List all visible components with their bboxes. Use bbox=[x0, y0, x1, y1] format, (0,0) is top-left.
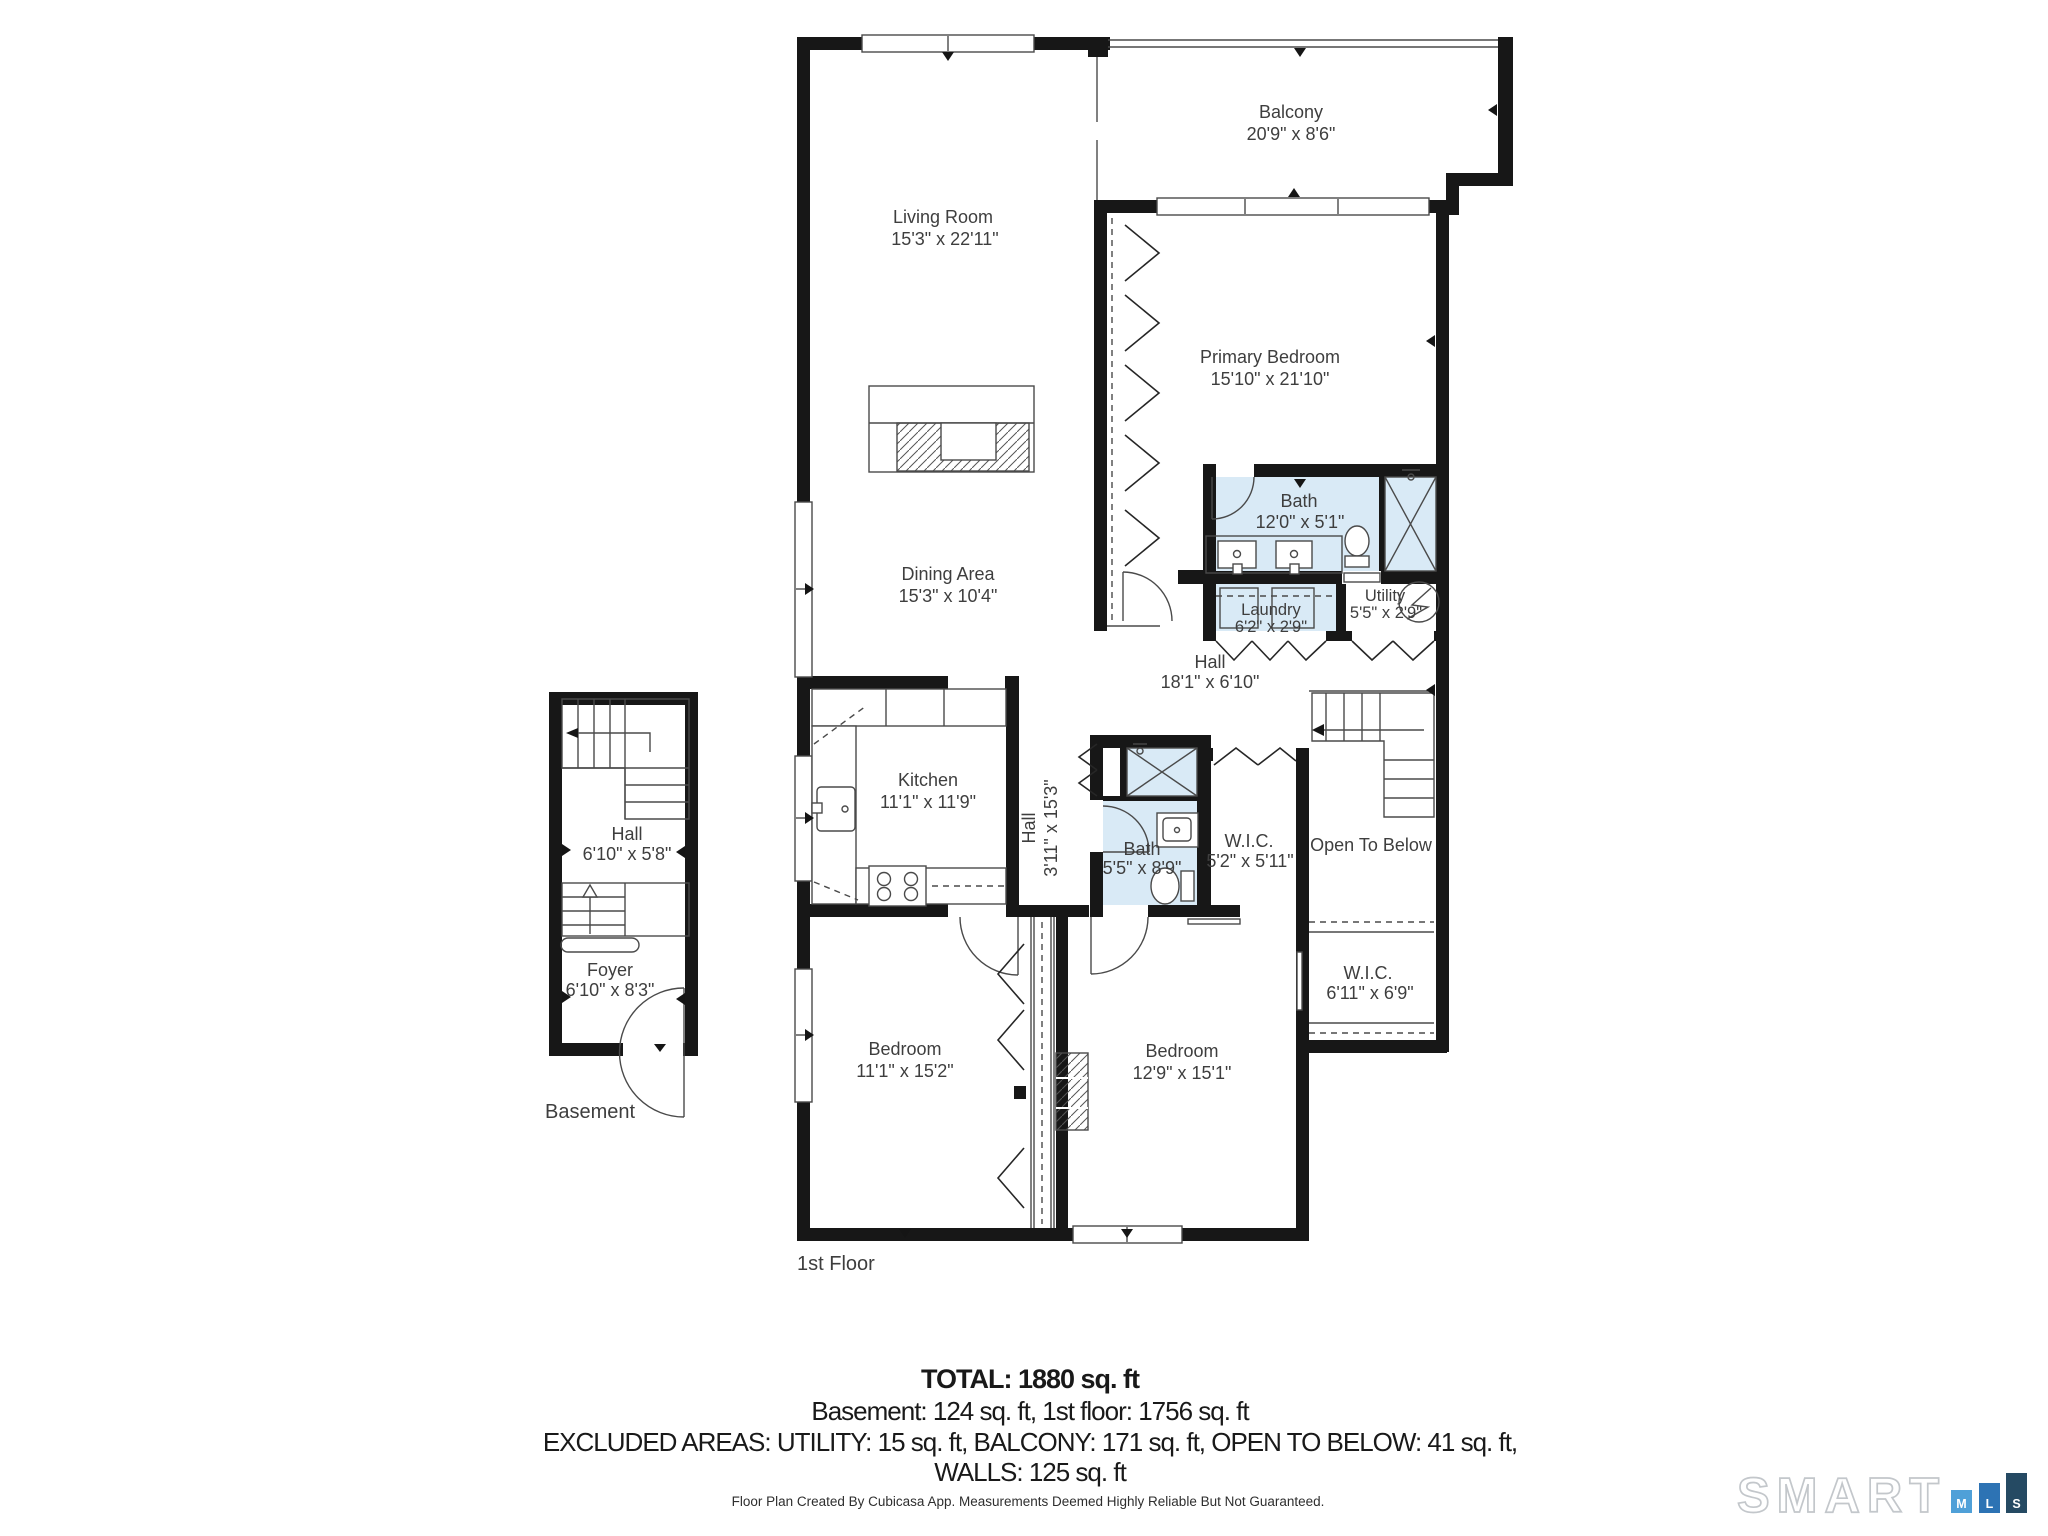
hall-dims: 18'1" x 6'10" bbox=[1161, 672, 1260, 692]
corridor-hall-dims: 3'11" x 15'3" bbox=[1041, 779, 1061, 876]
primary-bedroom-label: Primary Bedroom bbox=[1200, 347, 1340, 367]
floor-areas-text: Basement: 124 sq. ft, 1st floor: 1756 sq… bbox=[811, 1396, 1250, 1426]
walls-area-text: WALLS: 125 sq. ft bbox=[934, 1457, 1127, 1487]
toilet-icon bbox=[1345, 526, 1369, 567]
door-arc bbox=[620, 988, 685, 1117]
wall bbox=[1103, 796, 1197, 801]
closet-door-zigzag bbox=[1125, 365, 1159, 421]
kitchen-label: Kitchen bbox=[898, 770, 958, 790]
closet-door-panel bbox=[1297, 952, 1302, 1010]
wall bbox=[1296, 1040, 1447, 1053]
hall-label: Hall bbox=[1194, 652, 1225, 672]
dimension-ticks bbox=[562, 844, 685, 1052]
bedroom-right-dims: 12'9" x 15'1" bbox=[1133, 1063, 1232, 1083]
floor-plan-page: Balcony 20'9" x 8'6" Living Room 15'3" x… bbox=[0, 0, 2048, 1536]
wall bbox=[1180, 1228, 1309, 1241]
wall bbox=[1090, 735, 1199, 748]
kitchen-faucet bbox=[812, 803, 822, 813]
disclaimer-text: Floor Plan Created By Cubicasa App. Meas… bbox=[732, 1494, 1325, 1509]
wall bbox=[1148, 905, 1240, 917]
open-to-below-label: Open To Below bbox=[1310, 835, 1433, 855]
laundry-dims: 6'2" x 2'9" bbox=[1235, 618, 1307, 636]
wic2-dims: 6'11" x 6'9" bbox=[1326, 983, 1413, 1003]
living-room-label: Living Room bbox=[893, 207, 993, 227]
sliding-door-sill bbox=[1188, 919, 1240, 924]
wall bbox=[797, 675, 810, 758]
wall bbox=[797, 1100, 810, 1241]
basement-plan: Hall 6'10" x 5'8" Foyer 6'10" x 8'3" Bas… bbox=[545, 692, 698, 1123]
wall bbox=[1120, 735, 1127, 800]
wall bbox=[1094, 200, 1159, 213]
closet-door-zigzag bbox=[1252, 641, 1288, 660]
window bbox=[862, 35, 1034, 52]
dimension-tick bbox=[1426, 335, 1435, 347]
total-area-text: TOTAL: 1880 sq. ft bbox=[921, 1364, 1140, 1394]
sliding-door-sill bbox=[1344, 573, 1380, 582]
laundry-label: Laundry bbox=[1241, 601, 1301, 619]
wall bbox=[1379, 477, 1385, 571]
closet-door-zigzag bbox=[1214, 748, 1258, 765]
handrail bbox=[561, 938, 639, 952]
wall bbox=[797, 879, 810, 971]
bedroom-left-dims: 11'1" x 15'2" bbox=[856, 1061, 953, 1081]
wall bbox=[1178, 570, 1206, 584]
foyer-label: Foyer bbox=[587, 960, 633, 980]
mls-s-letter: S bbox=[2012, 1497, 2020, 1511]
basement-caption: Basement bbox=[545, 1101, 635, 1123]
hall-bath-dims: 5'5" x 8'9" bbox=[1103, 858, 1182, 878]
wall bbox=[1326, 631, 1352, 641]
foyer-dims: 6'10" x 8'3" bbox=[566, 980, 655, 1000]
dining-area-label: Dining Area bbox=[901, 564, 995, 584]
wall bbox=[1203, 464, 1212, 477]
wall bbox=[1436, 206, 1449, 1052]
balcony-sliding-door bbox=[1157, 198, 1429, 215]
basement-hall-label: Hall bbox=[611, 824, 642, 844]
floor-plan-canvas: Balcony 20'9" x 8'6" Living Room 15'3" x… bbox=[0, 0, 2048, 1536]
dimension-tick bbox=[1426, 684, 1435, 696]
wall bbox=[1006, 676, 1019, 917]
kitchen-counter bbox=[812, 689, 1006, 726]
closet-door-zigzag bbox=[1125, 295, 1159, 351]
balcony-label: Balcony bbox=[1259, 102, 1323, 122]
closet-door-zigzag bbox=[1125, 225, 1159, 281]
dining-area-dims: 15'3" x 10'4" bbox=[899, 586, 998, 606]
excluded-areas-text: EXCLUDED AREAS: UTILITY: 15 sq. ft, BALC… bbox=[543, 1427, 1517, 1457]
wall bbox=[1019, 905, 1089, 917]
smartmls-logo: SMART M L S bbox=[1737, 1469, 2027, 1523]
staircase-icon bbox=[562, 699, 689, 819]
wall bbox=[1434, 631, 1447, 641]
closet-door-zigzag bbox=[1125, 510, 1159, 566]
wall bbox=[685, 692, 698, 1056]
fireplace-icon bbox=[869, 386, 1034, 472]
closet-door-zigzag bbox=[1393, 641, 1434, 660]
room-labels: Hall 6'10" x 5'8" Foyer 6'10" x 8'3" bbox=[566, 824, 672, 1000]
closet-door-zigzag bbox=[998, 1148, 1024, 1208]
basement-hall-dims: 6'10" x 5'8" bbox=[583, 844, 672, 864]
wall bbox=[1197, 735, 1211, 917]
door-arc bbox=[1091, 917, 1148, 974]
dimension-tick bbox=[654, 1044, 666, 1052]
dimension-tick bbox=[676, 846, 685, 858]
door-arc bbox=[1123, 572, 1172, 621]
first-floor-plan: Balcony 20'9" x 8'6" Living Room 15'3" x… bbox=[795, 35, 1513, 1275]
sink-icon bbox=[1157, 813, 1198, 847]
kitchen-sink bbox=[817, 787, 855, 831]
primary-bedroom-dims: 15'10" x 21'10" bbox=[1211, 369, 1330, 389]
wall bbox=[797, 37, 810, 504]
staircase-icon bbox=[1312, 693, 1434, 817]
up-arrow bbox=[583, 885, 597, 897]
wall bbox=[1088, 37, 1108, 57]
dimension-tick bbox=[942, 52, 954, 61]
wall bbox=[1094, 213, 1107, 631]
kitchen-dims: 11'1" x 11'9" bbox=[880, 792, 976, 812]
closet-door-zigzag bbox=[1125, 435, 1159, 491]
dimension-tick bbox=[562, 844, 571, 856]
dimension-tick bbox=[676, 993, 685, 1005]
hall-bath-label: Bath bbox=[1123, 839, 1160, 859]
wall bbox=[1203, 464, 1216, 631]
utility-label: Utility bbox=[1365, 587, 1406, 605]
primary-bath-label: Bath bbox=[1280, 491, 1317, 511]
bedroom-right-label: Bedroom bbox=[1145, 1041, 1218, 1061]
smart-wordmark: SMART bbox=[1737, 1469, 1946, 1523]
wic2-label: W.I.C. bbox=[1344, 963, 1393, 983]
wall bbox=[1199, 748, 1213, 761]
chimney-icon bbox=[1056, 1053, 1088, 1130]
wall bbox=[1498, 37, 1513, 186]
wall bbox=[683, 1043, 698, 1056]
wic-dims: 5'2" x 5'11" bbox=[1206, 851, 1293, 871]
dimension-tick bbox=[1488, 104, 1497, 116]
mls-l-letter: L bbox=[1986, 1497, 1994, 1511]
balcony-dims: 20'9" x 8'6" bbox=[1247, 124, 1336, 144]
closet-door-zigzag bbox=[998, 1010, 1024, 1070]
wall bbox=[1254, 464, 1379, 477]
wall bbox=[1203, 631, 1216, 641]
wall bbox=[797, 1228, 1075, 1241]
bedroom-left-label: Bedroom bbox=[868, 1039, 941, 1059]
wall bbox=[1090, 852, 1103, 917]
wic-label: W.I.C. bbox=[1225, 831, 1274, 851]
wall bbox=[1336, 584, 1346, 631]
first-floor-caption: 1st Floor bbox=[797, 1253, 875, 1275]
closet-door-zigzag bbox=[1258, 748, 1296, 765]
stove-icon bbox=[869, 866, 926, 906]
wall bbox=[1446, 173, 1513, 186]
utility-dims: 5'5" x 2'9" bbox=[1350, 604, 1422, 622]
wall bbox=[549, 1043, 623, 1056]
door-arc bbox=[960, 917, 1018, 975]
wall bbox=[1014, 1086, 1026, 1099]
walls bbox=[549, 692, 698, 1056]
closet-door-zigzag bbox=[1288, 641, 1326, 660]
wall bbox=[810, 676, 948, 689]
area-summary: TOTAL: 1880 sq. ft Basement: 124 sq. ft,… bbox=[543, 1364, 1517, 1487]
closet-door-zigzag bbox=[1352, 641, 1393, 660]
staircase-icon bbox=[561, 883, 689, 952]
wall bbox=[1296, 748, 1309, 917]
dimension-tick bbox=[1294, 48, 1306, 57]
dimension-tick bbox=[1288, 188, 1300, 197]
wall bbox=[549, 692, 562, 1056]
wall bbox=[1006, 904, 1019, 917]
primary-bath-dims: 12'0" x 5'1" bbox=[1256, 512, 1345, 532]
mls-m-letter: M bbox=[1956, 1497, 1966, 1511]
living-room-dims: 15'3" x 22'11" bbox=[891, 229, 998, 249]
corridor-hall-label: Hall bbox=[1019, 812, 1039, 843]
